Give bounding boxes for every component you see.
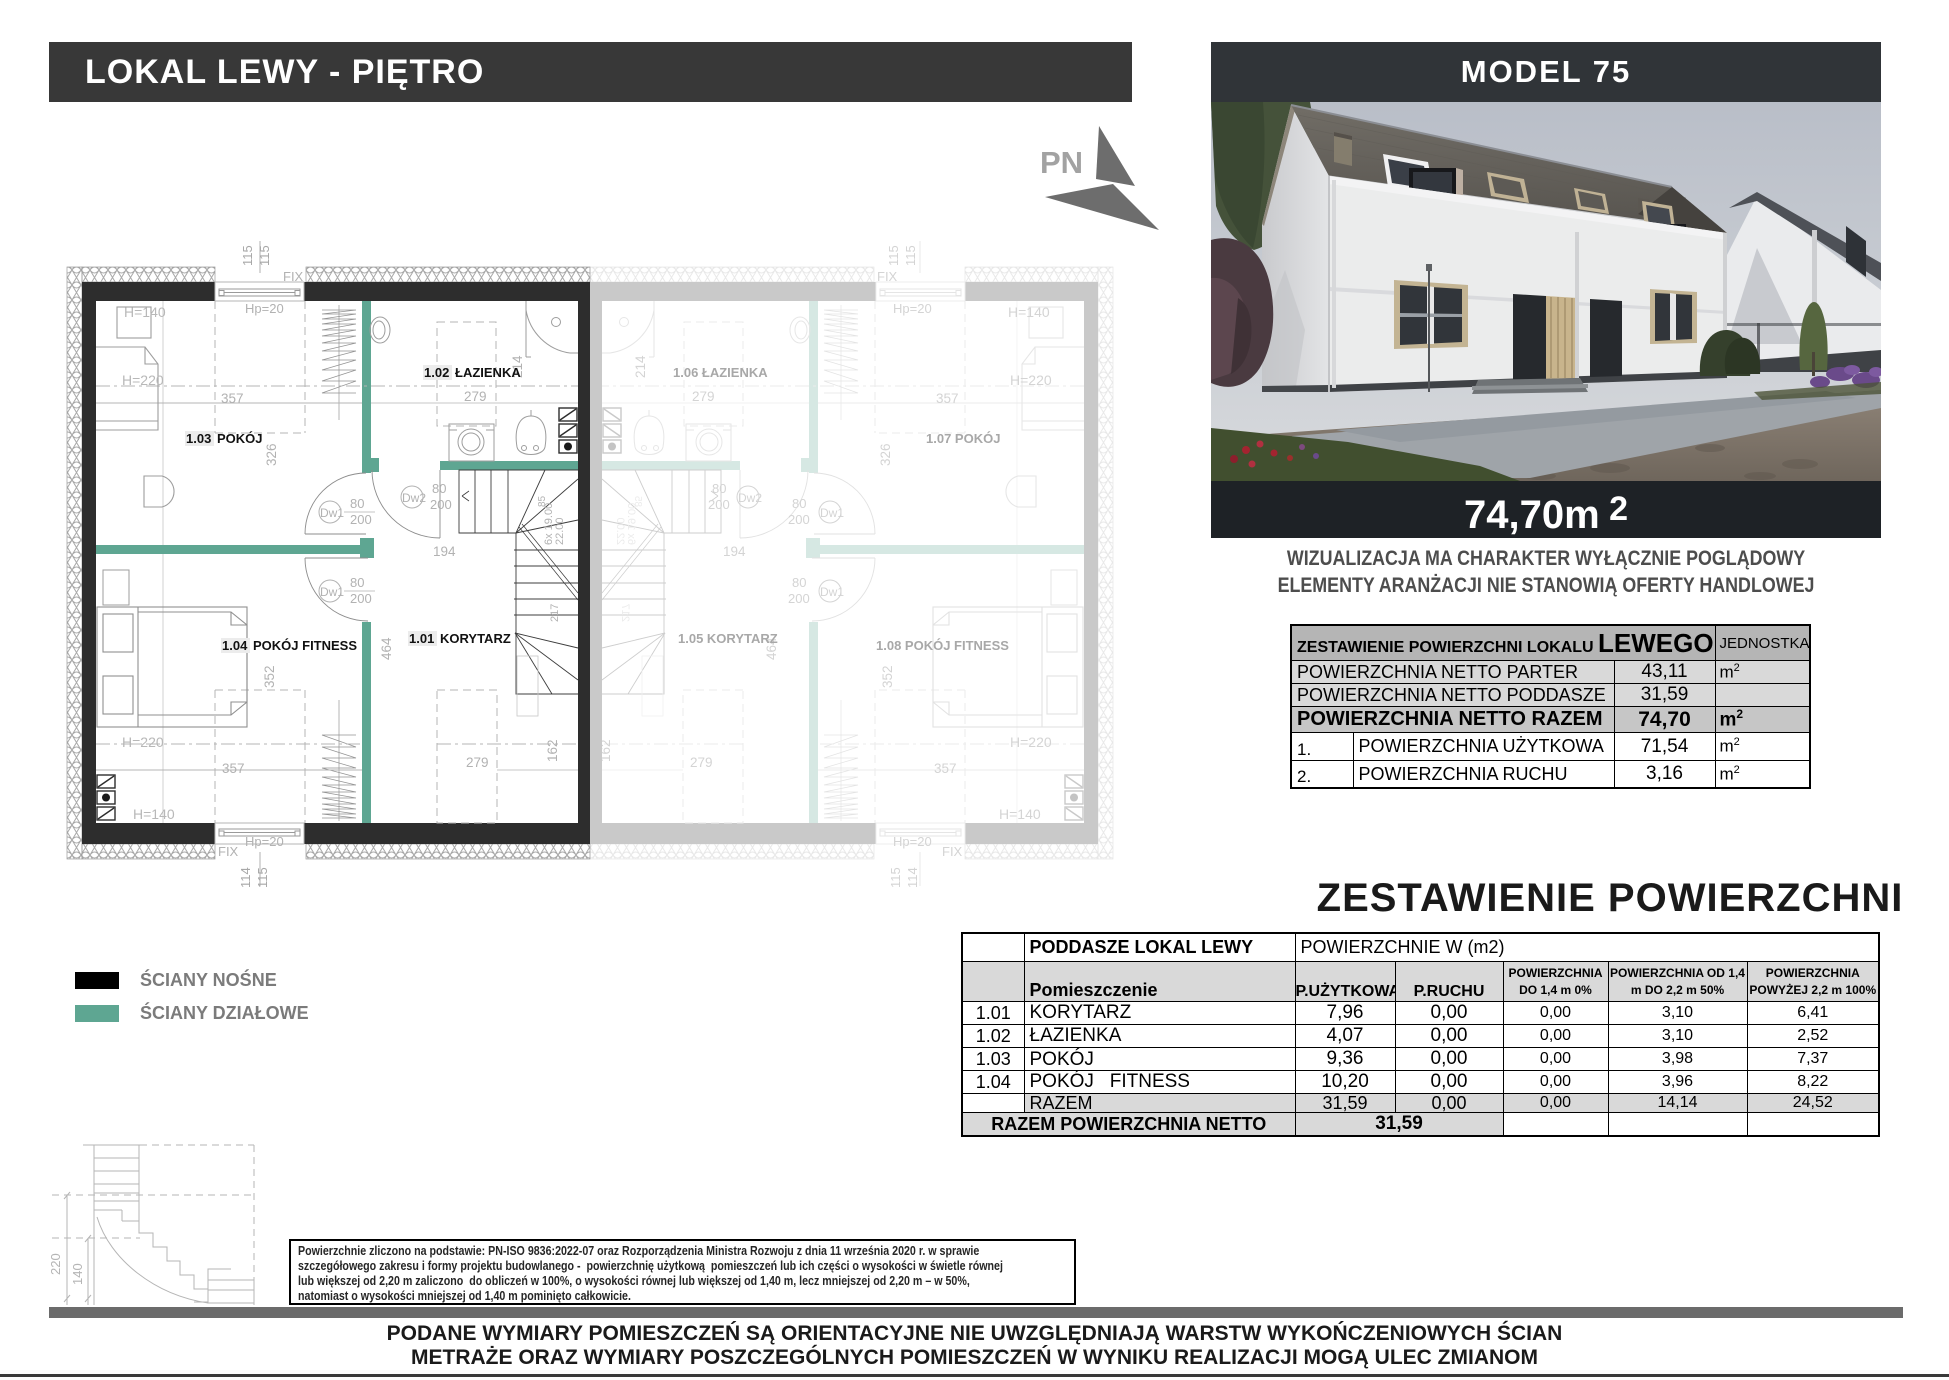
svg-text:214: 214 (633, 355, 648, 378)
svg-text:1.06 ŁAZIENKA: 1.06 ŁAZIENKA (673, 365, 768, 380)
svg-text:H=140: H=140 (1008, 304, 1050, 320)
svg-text:352: 352 (880, 665, 895, 688)
svg-text:PN: PN (1040, 145, 1083, 180)
svg-text:194: 194 (723, 544, 746, 559)
svg-text:FIX: FIX (877, 269, 898, 284)
svg-text:279: 279 (690, 755, 713, 770)
svg-text:200: 200 (788, 512, 810, 527)
svg-text:ŁAZIENKA: ŁAZIENKA (455, 365, 521, 380)
svg-text:357: 357 (934, 761, 957, 776)
svg-text:1.04: 1.04 (222, 638, 248, 653)
svg-text:115: 115 (886, 245, 901, 266)
svg-text:Hp=20: Hp=20 (893, 301, 932, 316)
svg-text:1.01: 1.01 (409, 631, 434, 646)
svg-text:1.08 POKÓJ FITNESS: 1.08 POKÓJ FITNESS (876, 638, 1009, 653)
svg-text:326: 326 (878, 443, 893, 466)
svg-text:80: 80 (712, 481, 726, 496)
svg-text:279: 279 (692, 389, 715, 404)
svg-text:114: 114 (905, 867, 920, 888)
svg-text:220: 220 (48, 1253, 63, 1275)
svg-text:KORYTARZ: KORYTARZ (440, 631, 511, 646)
svg-text:H=140: H=140 (999, 806, 1041, 822)
svg-text:200: 200 (708, 497, 730, 512)
svg-text:80: 80 (792, 575, 806, 590)
svg-text:140: 140 (70, 1263, 85, 1285)
svg-text:H=220: H=220 (1010, 734, 1052, 750)
svg-text:115: 115 (903, 245, 918, 266)
svg-text:Hp=20: Hp=20 (893, 834, 932, 849)
svg-text:H=220: H=220 (1010, 372, 1052, 388)
svg-text:200: 200 (788, 591, 810, 606)
svg-text:115: 115 (888, 867, 903, 888)
svg-text:POKÓJ: POKÓJ (217, 431, 263, 446)
svg-text:POKÓJ FITNESS: POKÓJ FITNESS (253, 638, 357, 653)
svg-text:80: 80 (792, 496, 806, 511)
svg-text:1.03: 1.03 (186, 431, 211, 446)
svg-text:1.02: 1.02 (424, 365, 449, 380)
svg-text:FIX: FIX (942, 844, 963, 859)
svg-text:1.07 POKÓJ: 1.07 POKÓJ (926, 431, 1000, 446)
svg-text:1.05 KORYTARZ: 1.05 KORYTARZ (678, 631, 778, 646)
svg-text:357: 357 (936, 391, 959, 406)
